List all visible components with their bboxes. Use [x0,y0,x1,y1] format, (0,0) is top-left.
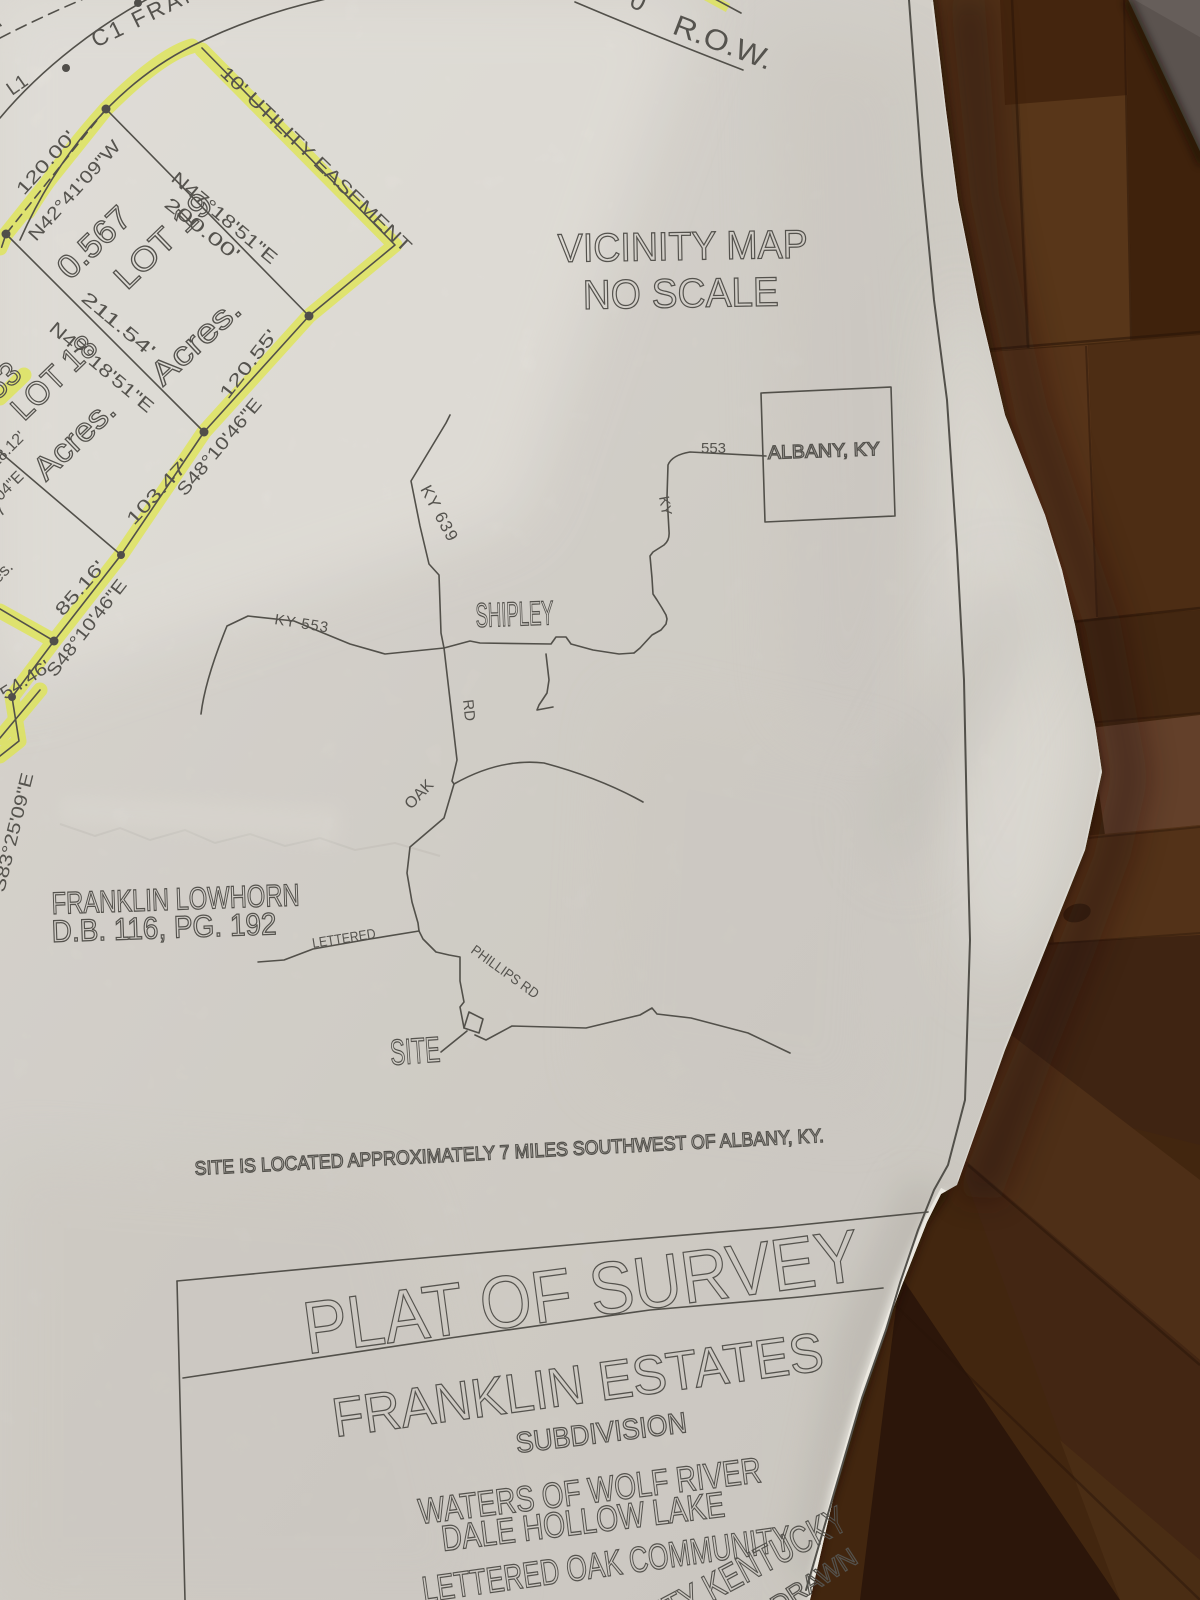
svg-text:ALBANY, KY: ALBANY, KY [767,439,880,464]
svg-text:SHIPLEY: SHIPLEY [475,594,554,635]
svg-text:NO SCALE: NO SCALE [582,269,779,318]
svg-text:553: 553 [701,440,726,457]
svg-text:KY: KY [655,495,674,517]
svg-text:VICINITY MAP: VICINITY MAP [557,223,808,271]
svg-text:SITE: SITE [389,1029,442,1073]
svg-text:RD: RD [459,699,478,722]
